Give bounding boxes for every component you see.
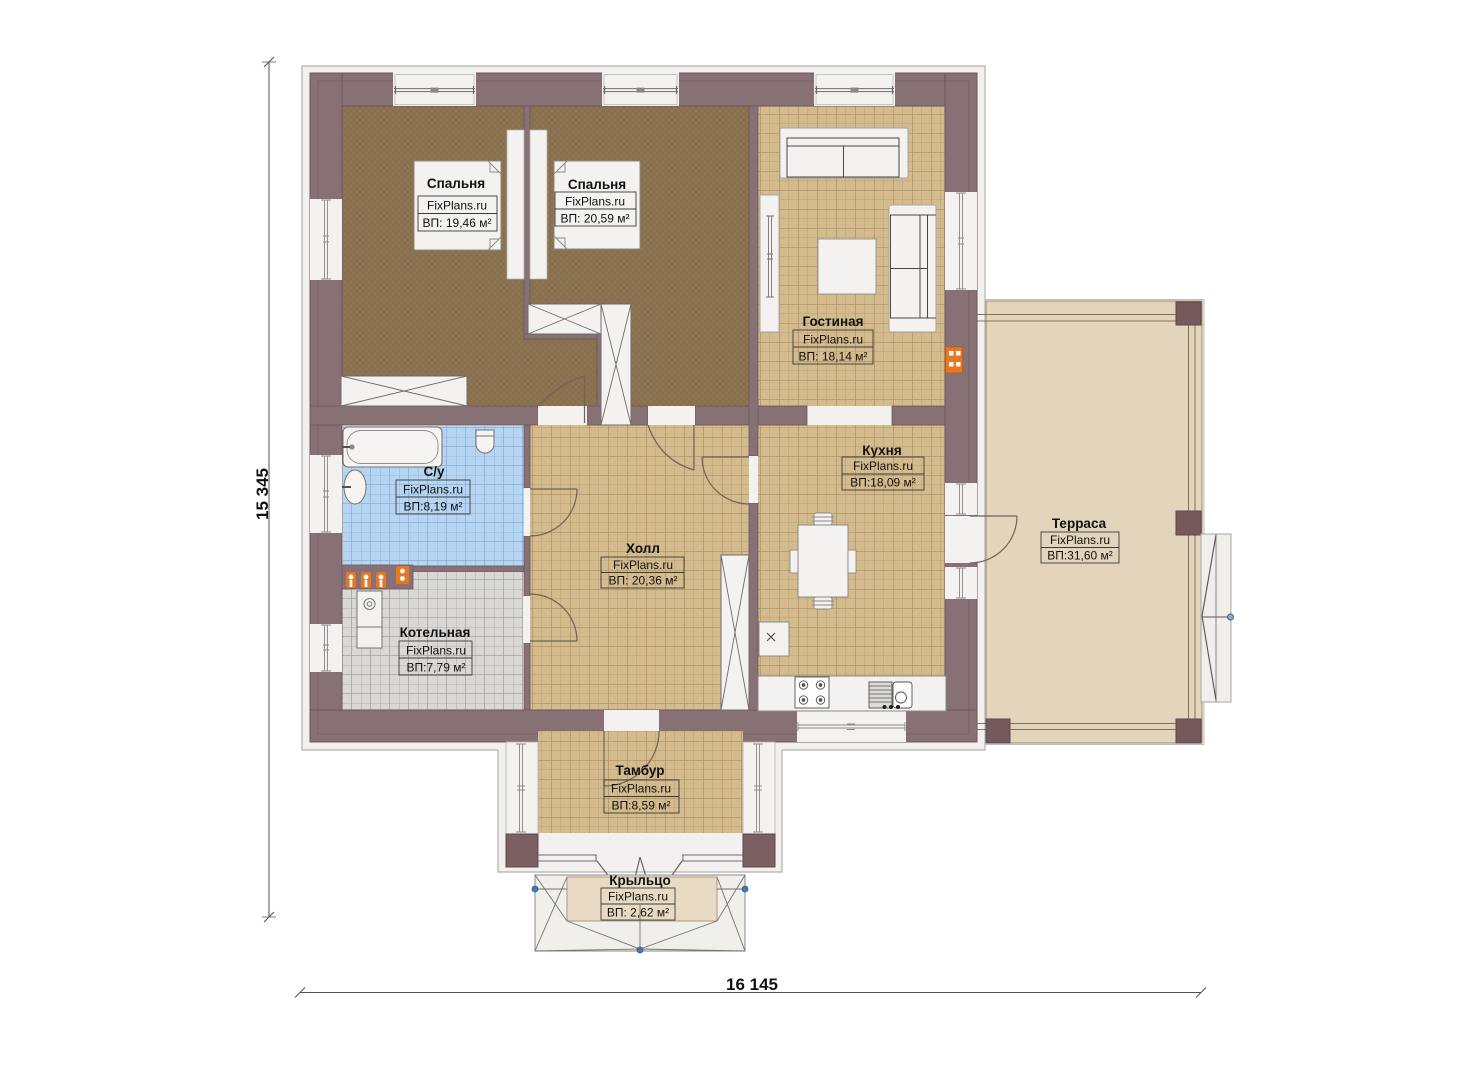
svg-text:С/у: С/у — [423, 464, 445, 479]
svg-text:FixPlans.ru: FixPlans.ru — [403, 483, 463, 497]
svg-text:15 345: 15 345 — [253, 468, 272, 520]
svg-text:Холл: Холл — [626, 541, 660, 556]
svg-text:FixPlans.ru: FixPlans.ru — [1050, 533, 1110, 547]
svg-text:Гостиная: Гостиная — [802, 314, 863, 329]
svg-text:FixPlans.ru: FixPlans.ru — [406, 644, 466, 658]
svg-text:ВП:7,79 м²: ВП:7,79 м² — [407, 661, 466, 675]
svg-text:ВП: 20,59 м²: ВП: 20,59 м² — [561, 212, 630, 226]
svg-text:Терраса: Терраса — [1052, 516, 1107, 531]
svg-text:ВП:8,19 м²: ВП:8,19 м² — [404, 500, 463, 514]
svg-text:ВП: 19,46 м²: ВП: 19,46 м² — [423, 216, 492, 230]
svg-text:16 145: 16 145 — [726, 975, 778, 994]
svg-text:FixPlans.ru: FixPlans.ru — [611, 782, 671, 796]
svg-text:Котельная: Котельная — [400, 625, 471, 640]
svg-text:Спальня: Спальня — [427, 176, 485, 191]
svg-text:ВП: 20,36 м²: ВП: 20,36 м² — [609, 574, 678, 588]
svg-text:ВП: 18,14 м²: ВП: 18,14 м² — [799, 350, 868, 364]
svg-text:Крыльцо: Крыльцо — [609, 873, 670, 888]
svg-text:ВП:18,09 м²: ВП:18,09 м² — [850, 476, 916, 490]
svg-text:FixPlans.ru: FixPlans.ru — [427, 199, 487, 213]
svg-text:FixPlans.ru: FixPlans.ru — [608, 890, 668, 904]
svg-text:FixPlans.ru: FixPlans.ru — [613, 558, 673, 572]
svg-text:FixPlans.ru: FixPlans.ru — [565, 195, 625, 209]
svg-text:ВП:31,60 м²: ВП:31,60 м² — [1047, 549, 1113, 563]
svg-text:Тамбур: Тамбур — [616, 763, 665, 778]
svg-text:FixPlans.ru: FixPlans.ru — [853, 459, 913, 473]
svg-text:Спальня: Спальня — [568, 177, 626, 192]
svg-text:ВП: 2,62 м²: ВП: 2,62 м² — [607, 906, 669, 920]
svg-text:ВП:8,59 м²: ВП:8,59 м² — [612, 799, 671, 813]
svg-text:Кухня: Кухня — [862, 443, 901, 458]
svg-text:FixPlans.ru: FixPlans.ru — [803, 333, 863, 347]
